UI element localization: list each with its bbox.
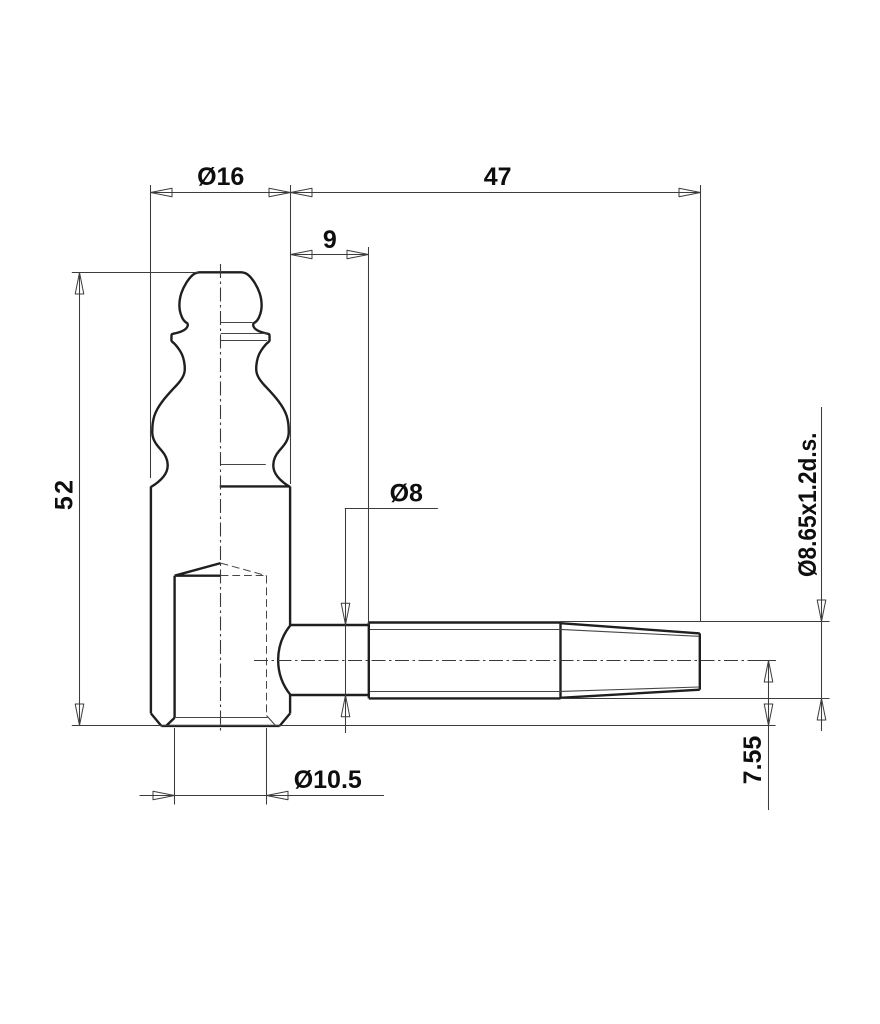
svg-text:Ø8: Ø8 [390,480,423,508]
svg-text:9: 9 [323,226,337,254]
svg-text:Ø16: Ø16 [197,163,244,191]
svg-text:Ø8.65x1.2d.s.: Ø8.65x1.2d.s. [794,433,822,578]
svg-text:47: 47 [484,163,512,191]
svg-text:52: 52 [51,480,79,510]
svg-text:Ø10.5: Ø10.5 [294,766,362,794]
svg-text:7.55: 7.55 [739,736,767,785]
